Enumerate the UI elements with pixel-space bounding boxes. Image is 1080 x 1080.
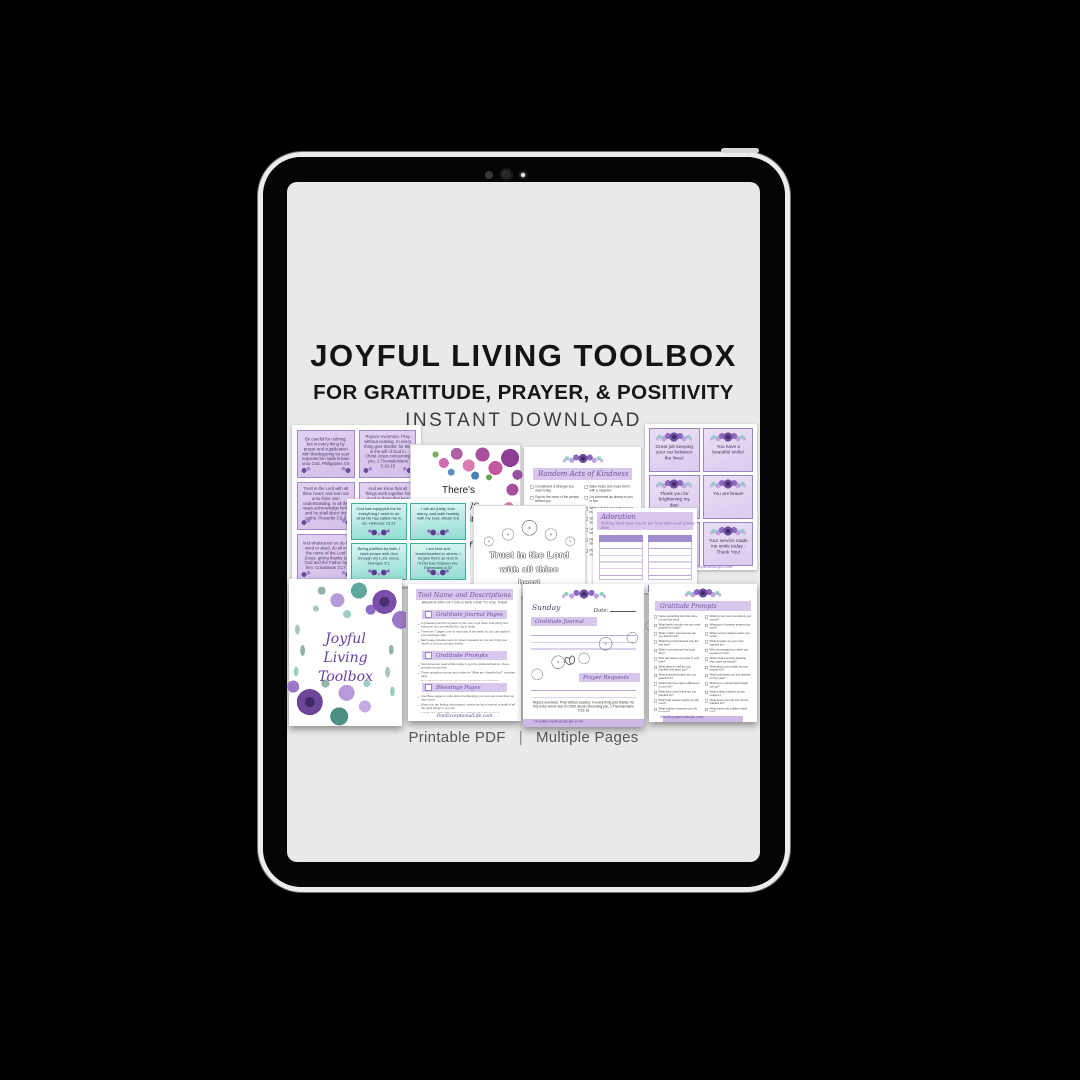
format-label: Printable PDF (408, 729, 505, 746)
compliment-card-text: You have a beautiful smile! (704, 429, 753, 471)
checkbox-icon (654, 674, 657, 677)
checkbox-icon (654, 708, 657, 711)
prompt-item: What talent or skill are you thankful Go… (654, 665, 701, 672)
stage: JOYFUL LIVING TOOLBOX FOR GRATITUDE, PRA… (0, 0, 1080, 1080)
prompt-item-text: Who encouraged you when you needed it mo… (710, 649, 753, 656)
bullet-dash-icon (418, 705, 420, 706)
prompt-item: What freedom are you most thankful for? (705, 640, 752, 647)
tool-bullet: When you are feeling discouraged, review… (418, 703, 516, 710)
prompts-footer-bar: OneExceptionalLife.com (663, 716, 743, 722)
bullet-dash-icon (418, 697, 420, 698)
prompt-item: What about your health are you grateful … (705, 665, 752, 672)
floral-emblem-icon (562, 587, 606, 601)
kindness-item-text: Compliment a stranger you meet today (535, 485, 581, 493)
tool-section-bullets: Sometimes we need a little nudge to get … (418, 663, 516, 681)
tool-bullet: Over 25 prompts to help you get your gra… (418, 680, 516, 681)
prompt-item: What modern convenience are you thankful… (654, 632, 701, 639)
checkbox-icon (585, 486, 589, 490)
writing-lines (648, 542, 692, 580)
checkbox-icon (705, 616, 708, 619)
kindness-title: Random Acts of Kindness (533, 468, 632, 480)
prompt-item-text: What pet or animal has brought you joy? (710, 682, 753, 689)
affirmation-card: I am kind and tenderhearted to others. I… (410, 543, 466, 580)
prompt-item-text: What do you love most about your church? (710, 615, 753, 622)
prompt-item: What do you love most about your church? (705, 615, 752, 622)
checkbox-icon (425, 684, 432, 691)
checkbox-icon (585, 496, 589, 500)
prompt-item-text: What talent or skill are you thankful Go… (659, 665, 702, 672)
kindness-item-text: Pay for the order of the person behind y… (535, 496, 581, 504)
tool-section-banner: Gratitude Journal Pages (422, 610, 507, 619)
column-header-bar (648, 535, 692, 542)
tool-bullet-text: When you are feeling discouraged, review… (421, 703, 516, 710)
checkbox-icon (425, 652, 432, 659)
bullet-dash-icon (418, 624, 420, 625)
checkbox-icon (705, 632, 708, 635)
kindness-item: Pay for the order of the person behind y… (530, 496, 581, 504)
compliment-card: You are brave! (703, 475, 754, 519)
cover-title-line: Living (289, 650, 402, 666)
tablet-device: JOYFUL LIVING TOOLBOX FOR GRATITUDE, PRA… (258, 152, 790, 892)
bullet-dash-icon (418, 665, 420, 666)
tools-subtitle-wrap: BREAKDOWN OF TOOLS AND HOW TO USE THEM (408, 601, 521, 606)
cover-page: Joyful Living Toolbox (289, 579, 402, 726)
camera-lens-icon (500, 168, 513, 181)
tool-section-banner: Blessings Pages (422, 683, 507, 692)
scripture-card: Trust in the Lord with all thine heart; … (297, 482, 355, 530)
tool-section-bullets: Use these pages to write down the blessi… (418, 695, 516, 713)
tool-bullet-text: Over 25 prompts to help you get your gra… (421, 680, 500, 681)
cover-title-line: Toolbox (289, 669, 402, 685)
prompt-item: What teacher impacted your life for good… (654, 707, 701, 712)
prompt-item-text: What about your home are you thankful fo… (659, 691, 702, 698)
pages-label: Multiple Pages (536, 729, 639, 746)
watercolor-wreath-top-icon (308, 575, 406, 631)
page-title: JOYFUL LIVING TOOLBOX (287, 340, 760, 371)
affirmation-cards-grid: God has equipped me for everything I nee… (351, 503, 466, 582)
website-credit: OneExceptionalLife.com (408, 714, 521, 719)
writing-lines (531, 684, 636, 699)
prompts-col-right: What do you love most about your church?… (705, 615, 752, 712)
prompt-item: Name something God has done for you this… (654, 615, 701, 622)
checkbox-icon (705, 666, 708, 669)
prompt-item-text: What freedom are you most thankful for? (710, 640, 753, 647)
tool-bullet: These questions prompt and make the "Wha… (418, 671, 516, 678)
compliment-card: Your service made me smile today - Thank… (703, 522, 754, 566)
prompts-title: Gratitude Prompts (655, 601, 751, 611)
floral-emblem-icon (563, 452, 603, 465)
checkbox-icon (654, 641, 657, 644)
tool-bullet: There are 7 pages, one for each day of t… (418, 630, 516, 637)
page-subtitle: FOR GRATITUDE, PRAYER, & POSITIVITY (287, 383, 760, 404)
scripture-card-text: Be careful for nothing; but in every thi… (298, 431, 354, 477)
prompt-item-text: What hard season taught you the most? (659, 699, 702, 706)
kindness-item-text: Let someone go ahead of you in line (590, 496, 636, 504)
adoration-col (648, 535, 692, 580)
watercolor-floral-corner-icon (431, 442, 523, 484)
prompt-item-text: What opportunity are you thankful for th… (710, 674, 753, 681)
tool-section-heading: Blessings Pages (436, 685, 480, 691)
affirmation-card-text: I am kind and tenderhearted to others. I… (411, 544, 465, 579)
scripture-card-text: Trust in the Lord with all thine heart; … (298, 483, 354, 529)
adoration-subtitle-wrap: Telling God how much we love Him and pra… (601, 521, 693, 526)
checkbox-icon (530, 486, 534, 490)
date-blank-line (610, 606, 636, 612)
affirmation-card-text: I will act justly, love mercy, and walk … (411, 504, 465, 539)
adoration-title: Adoration (601, 513, 693, 521)
prompt-item: Who has helped you grow in your faith? (654, 657, 701, 664)
prompt-item: What hard season taught you the most? (654, 699, 701, 706)
scripture-card: Rejoice evermore. Pray without ceasing. … (359, 430, 417, 478)
tool-bullet-text: There are 7 pages, one for each day of t… (421, 630, 516, 637)
tool-bullet-text: A gratitude journal is a place of your o… (421, 622, 516, 629)
separator: | (519, 729, 523, 746)
prompt-item-text: What is your favorite food and why? (659, 649, 702, 656)
checkbox-icon (705, 657, 708, 660)
coloring-text-line: Trust in the Lord (474, 550, 585, 560)
checkbox-icon (654, 666, 657, 669)
affirmation-cards-sheet: God has equipped me for everything I nee… (347, 499, 470, 586)
checkbox-icon (705, 641, 708, 644)
writing-lines (599, 542, 643, 580)
checkbox-icon (705, 674, 708, 677)
tool-bullet-text: Sometimes we need a little nudge to get … (421, 663, 516, 670)
prompt-item: What family member are you most grateful… (654, 623, 701, 630)
prompt-item-text: What answered prayer are you grateful fo… (659, 674, 702, 681)
compliment-card: Great job keeping your car between the l… (649, 428, 700, 472)
checkbox-icon (654, 691, 657, 694)
checkbox-icon (654, 657, 657, 660)
checkbox-icon (654, 699, 657, 702)
compliment-card-text: You are brave! (704, 476, 753, 518)
prompt-item-text: What memory always makes you smile? (710, 632, 753, 639)
tool-bullet: A habit of counting blessings turns ordi… (418, 712, 516, 713)
day-label: Sunday (532, 603, 560, 612)
tool-bullet-text: These questions prompt and make the "Wha… (421, 671, 516, 678)
tool-section-bullets: A gratitude journal is a place of your o… (418, 622, 516, 648)
prompt-item: What pet or animal has brought you joy? (705, 682, 752, 689)
checkbox-icon (654, 616, 657, 619)
bullet-dash-icon (418, 641, 420, 642)
kindness-item: Compliment a stranger you meet today (530, 485, 581, 493)
checkbox-icon (654, 683, 657, 686)
checkbox-icon (530, 496, 534, 500)
prompt-item-text: What about your health are you grateful … (710, 665, 753, 672)
outline-flowers-icon (476, 508, 583, 552)
tools-subtitle: BREAKDOWN OF TOOLS AND HOW TO USE THEM (408, 601, 521, 605)
prompt-item-text: What lesson did a failure teach you? (710, 707, 753, 712)
checkbox-icon (654, 649, 657, 652)
tool-descriptions-page: Tool Name and Descriptions BREAKDOWN OF … (408, 584, 521, 721)
prompt-item: What about your home are you thankful fo… (654, 691, 701, 698)
journal-footer-bar: OneExceptionalLife.com (523, 719, 644, 727)
prompt-item: What part of creation amazes you most? (705, 623, 752, 630)
bullet-dash-icon (418, 632, 420, 633)
prompt-item: What is your favorite food and why? (654, 649, 701, 656)
prompt-item-text: What small everyday blessing often goes … (710, 657, 753, 664)
tablet-bezel: JOYFUL LIVING TOOLBOX FOR GRATITUDE, PRA… (263, 157, 785, 887)
checkbox-icon (654, 632, 657, 635)
date-label: Date: (593, 608, 608, 614)
prompt-item-text: Name something God has done for you this… (659, 615, 702, 622)
journal-verse: Rejoice evermore. Pray without ceasing. … (531, 701, 636, 713)
compliment-card: You have a beautiful smile! (703, 428, 754, 472)
checkbox-icon (705, 699, 708, 702)
website-credit: OneExceptionalLife.com (534, 719, 584, 724)
affirmation-card: I will act justly, love mercy, and walk … (410, 503, 466, 540)
tool-bullet: Use these pages to write down the blessi… (418, 695, 516, 702)
gratitude-journal-page: Sunday Date: Gratitude Journal Prayer Re… (523, 584, 644, 727)
tool-section-heading: Gratitude Journal Pages (436, 612, 503, 618)
affirmation-card-text: Being justified by faith, I have peace w… (352, 544, 406, 579)
prompts-col-left: Name something God has done for you this… (654, 615, 701, 712)
kindness-item: Let someone go ahead of you in line (585, 496, 636, 504)
prompt-item-text: What book has made a difference in your … (659, 682, 702, 689)
affirmation-card-text: God has equipped me for everything I nee… (352, 504, 406, 539)
gratitude-prompts-page: Gratitude Prompts Name something God has… (649, 584, 757, 722)
poster-line: There's (411, 485, 506, 496)
prompt-item: What holiday tradition do you treasure? (705, 691, 752, 698)
prompt-item: What small everyday blessing often goes … (705, 657, 752, 664)
camera-light-icon (521, 173, 525, 177)
adoration-banner: Adoration Telling God how much we love H… (597, 512, 693, 530)
bullet-dash-icon (418, 673, 420, 674)
tool-bullet-text: Each page includes room for prayer reque… (421, 639, 516, 646)
journal-verse-wrap: Rejoice evermore. Pray without ceasing. … (531, 701, 636, 717)
prompt-item: What answered prayer are you grateful fo… (654, 674, 701, 681)
prompt-item-text: What part of creation amazes you most? (710, 623, 753, 630)
checkbox-icon (705, 708, 708, 711)
scripture-card: Be careful for nothing; but in every thi… (297, 430, 355, 478)
adoration-page: Adoration Telling God how much we love H… (593, 508, 697, 593)
gratitude-journal-banner: Gratitude Journal (531, 617, 597, 626)
cover-title-line: Joyful (289, 631, 402, 647)
tablet-screen: JOYFUL LIVING TOOLBOX FOR GRATITUDE, PRA… (287, 182, 760, 862)
prompt-item: What about your job can you be thankful … (705, 699, 752, 706)
compliment-card-text: Your service made me smile today - Thank… (704, 523, 753, 565)
tool-section-heading: Gratitude Prompts (436, 653, 488, 659)
date-field: Date: (593, 606, 636, 614)
prompt-item-text: What friend has blessed your life and ho… (659, 640, 702, 647)
scripture-card-text: Rejoice evermore. Pray without ceasing. … (360, 431, 416, 477)
prompt-item-text: What about your job can you be thankful … (710, 699, 753, 706)
checkbox-icon (705, 683, 708, 686)
coloring-text-line: with all thine (474, 564, 585, 574)
prompt-item-text: What teacher impacted your life for good… (659, 707, 702, 712)
tool-section-banner: Gratitude Prompts (422, 651, 507, 660)
website-credit: OneExceptionalLife.com (660, 715, 703, 719)
prompt-item: What book has made a difference in your … (654, 682, 701, 689)
power-button (721, 148, 759, 153)
column-header-bar (599, 535, 643, 542)
tool-bullet: Each page includes room for prayer reque… (418, 639, 516, 646)
checkbox-icon (654, 624, 657, 627)
checkbox-icon (705, 624, 708, 627)
prompt-item-text: What family member are you most grateful… (659, 623, 702, 630)
checkbox-icon (705, 691, 708, 694)
prompt-item: What lesson did a failure teach you? (705, 707, 752, 712)
affirmation-card: God has equipped me for everything I nee… (351, 503, 407, 540)
prompt-item-text: Who has helped you grow in your faith? (659, 657, 702, 664)
checkbox-icon (425, 611, 432, 618)
tool-bullet-text: Use these pages to write down the blessi… (421, 695, 516, 702)
compliment-card-text: Great job keeping your car between the l… (650, 429, 699, 471)
adoration-subtitle: Telling God how much we love Him and pra… (601, 521, 701, 530)
kindness-item: Bake treats and share them with a neighb… (585, 485, 636, 493)
prompt-item: Who encouraged you when you needed it mo… (705, 649, 752, 656)
tool-bullet: A gratitude journal is a place of your o… (418, 622, 516, 629)
format-caption: Printable PDF | Multiple Pages (287, 729, 760, 746)
prompt-item-text: What modern convenience are you thankful… (659, 632, 702, 639)
prompt-item-text: What holiday tradition do you treasure? (710, 691, 753, 698)
camera-sensor-icon (485, 171, 493, 179)
floral-emblem-icon (685, 587, 721, 599)
prompt-item: What memory always makes you smile? (705, 632, 752, 639)
tool-bullet-text: A habit of counting blessings turns ordi… (421, 712, 516, 713)
tools-title: Tool Name and Descriptions (416, 589, 513, 600)
prompt-item: What opportunity are you thankful for th… (705, 674, 752, 681)
prompt-item: What friend has blessed your life and ho… (654, 640, 701, 647)
prayer-requests-banner: Prayer Requests (579, 673, 640, 682)
checkbox-icon (705, 649, 708, 652)
prompts-items-area: Name something God has done for you this… (654, 615, 752, 712)
adoration-col (599, 535, 643, 580)
kindness-item-text: Bake treats and share them with a neighb… (590, 485, 636, 493)
tool-bullet: Sometimes we need a little nudge to get … (418, 663, 516, 670)
